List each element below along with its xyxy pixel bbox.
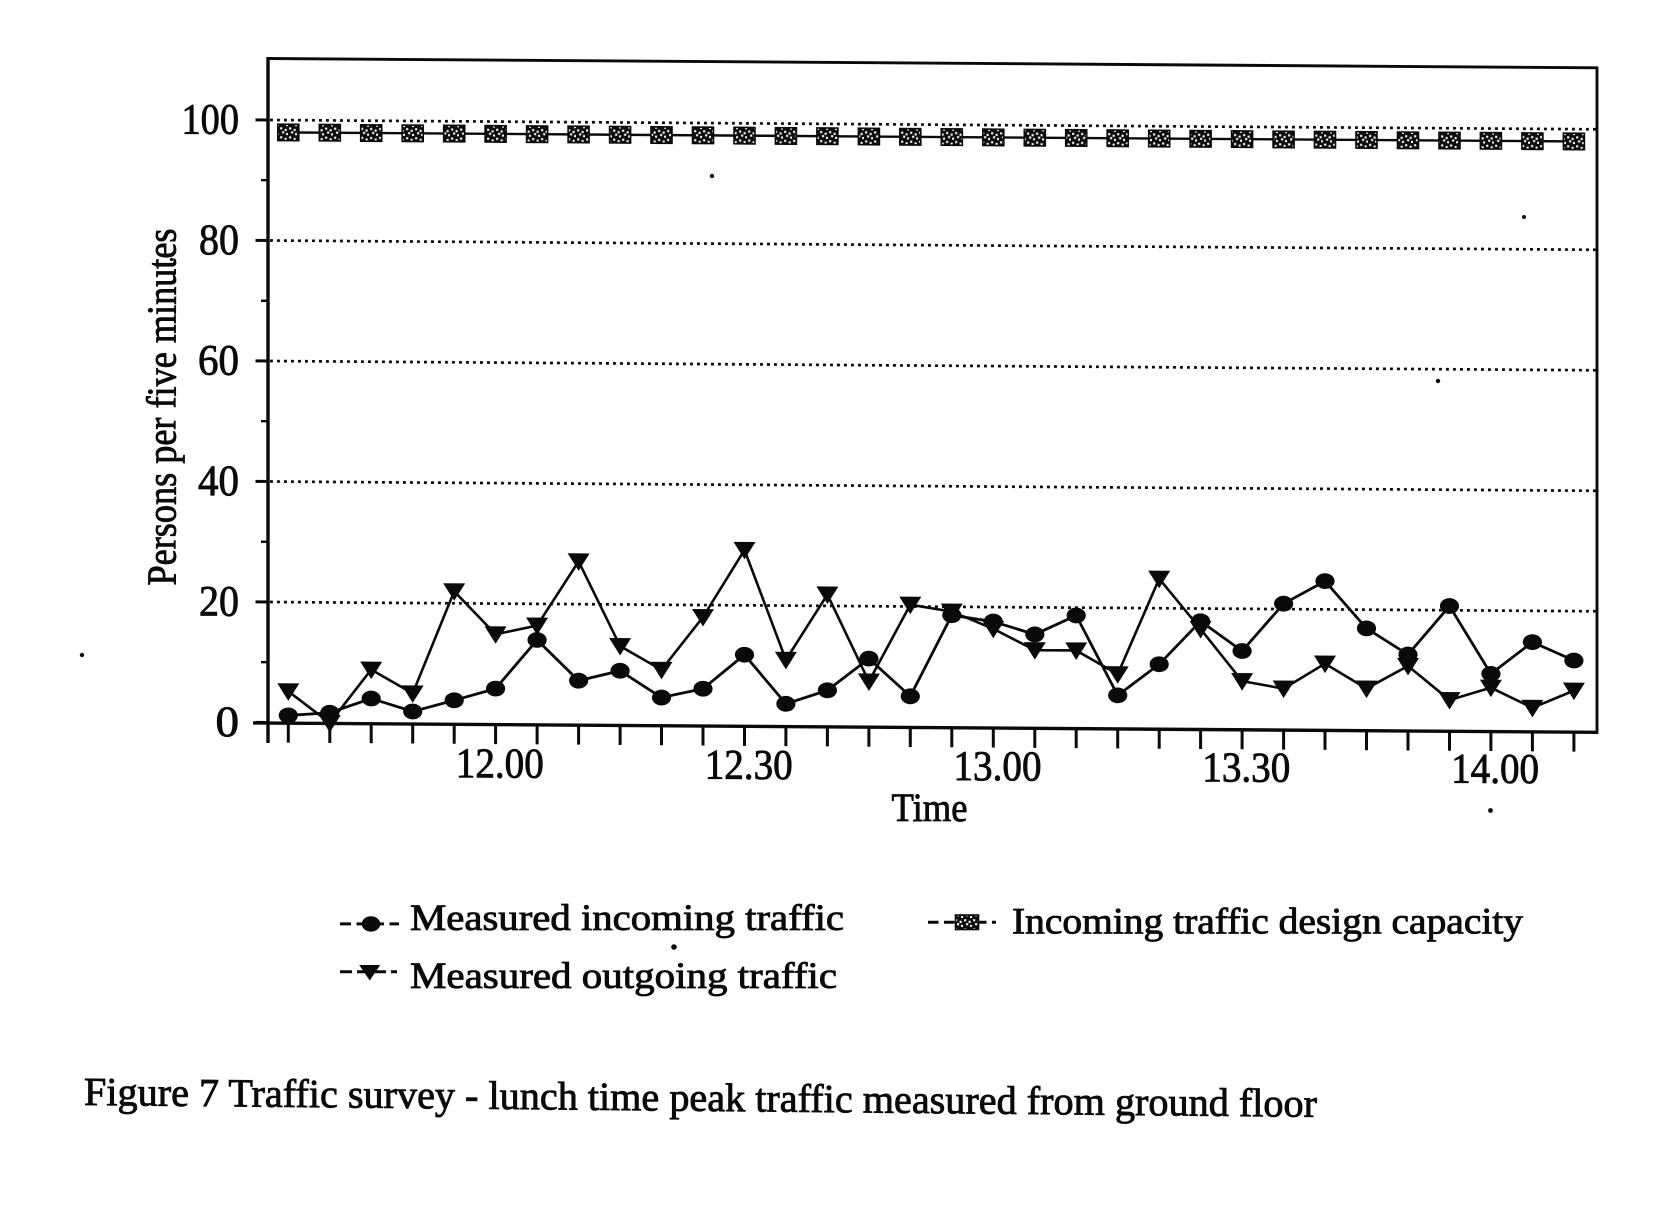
svg-text:100: 100	[182, 97, 240, 144]
svg-text:12.30: 12.30	[705, 742, 793, 789]
svg-text:40: 40	[198, 458, 239, 505]
svg-text:12.00: 12.00	[456, 740, 544, 787]
svg-text:13.00: 13.00	[954, 743, 1042, 790]
svg-text:14.00: 14.00	[1451, 746, 1539, 793]
svg-text:13.30: 13.30	[1202, 744, 1290, 791]
svg-text:20: 20	[199, 579, 239, 626]
svg-text:80: 80	[199, 217, 239, 264]
svg-text:Incoming traffic design capaci: Incoming traffic design capacity	[1012, 901, 1524, 942]
svg-text:Measured incoming traffic: Measured incoming traffic	[410, 897, 844, 938]
svg-text:0: 0	[216, 699, 240, 746]
svg-text:Persons per five minutes: Persons per five minutes	[139, 229, 185, 586]
svg-text:Time: Time	[892, 785, 968, 830]
svg-text:60: 60	[198, 338, 239, 385]
svg-text:Measured outgoing traffic: Measured outgoing traffic	[410, 955, 837, 996]
